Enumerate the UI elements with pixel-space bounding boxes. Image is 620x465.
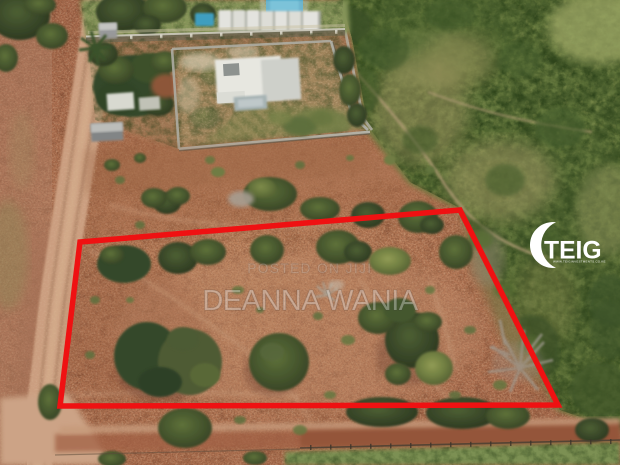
svg-text:POSTED ON JIJI: POSTED ON JIJI	[247, 261, 372, 276]
svg-text:DEANNA WANIA: DEANNA WANIA	[202, 285, 418, 317]
svg-text:WWW.TEIGINVESTMENTS.CO.KE: WWW.TEIGINVESTMENTS.CO.KE	[553, 260, 606, 264]
